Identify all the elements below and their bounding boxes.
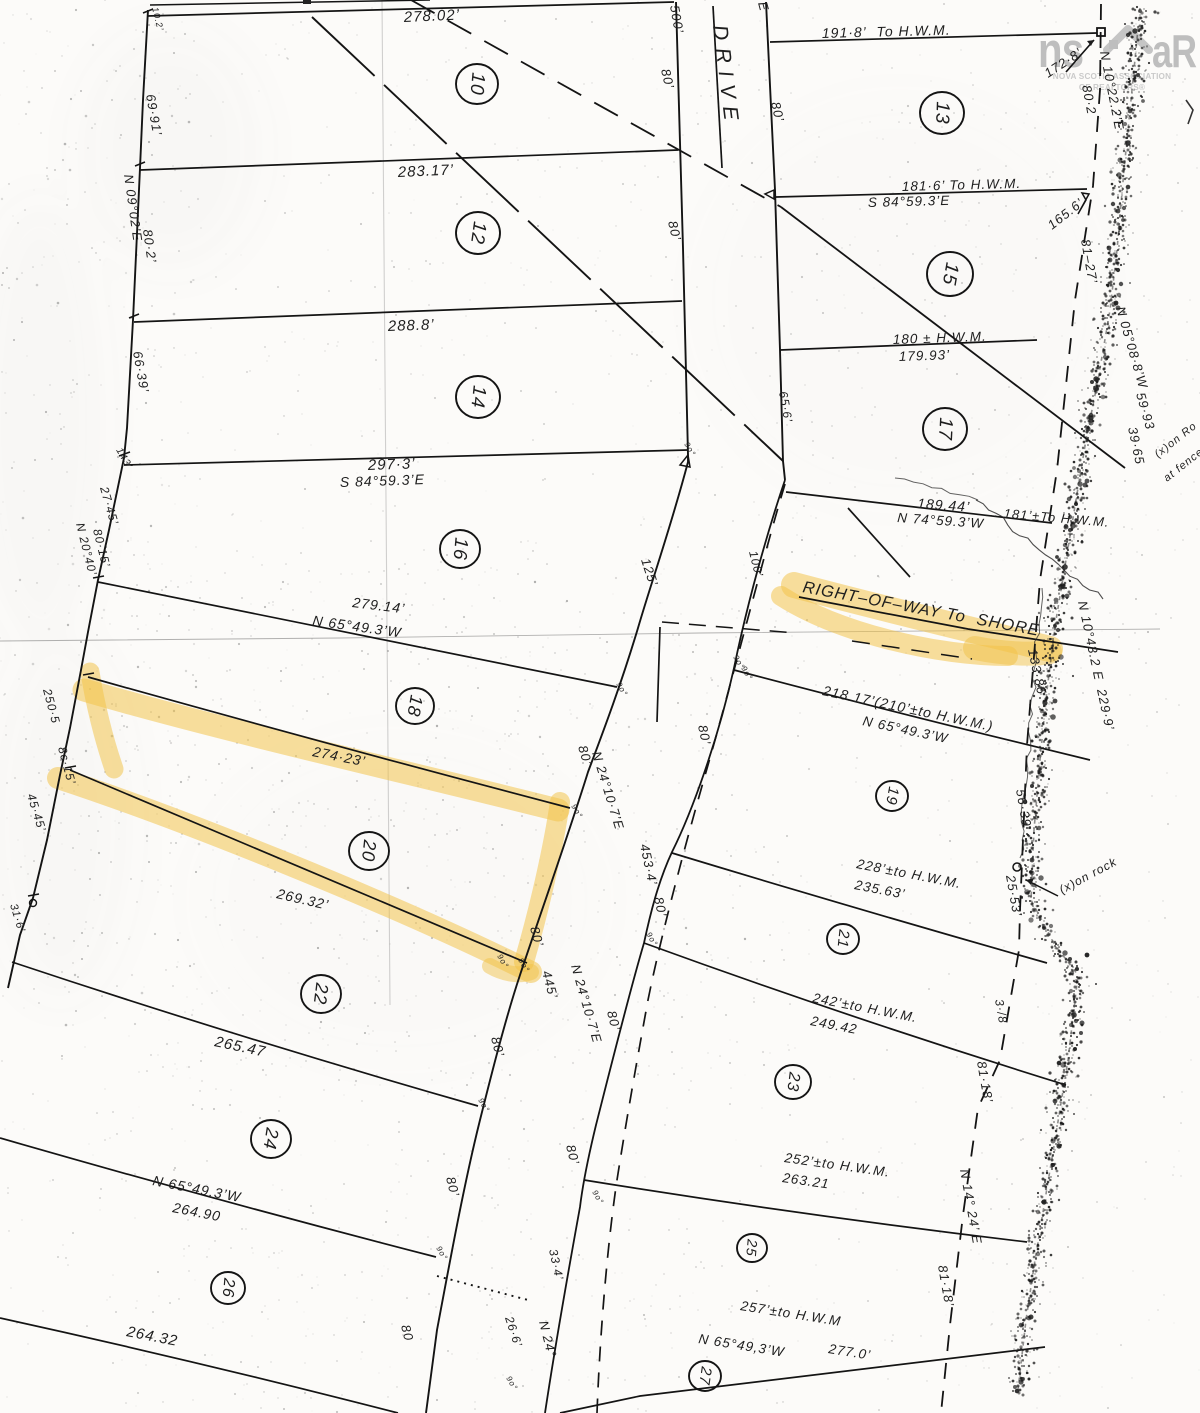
svg-text:18: 18 bbox=[403, 693, 427, 718]
svg-text:278.02’: 278.02’ bbox=[402, 7, 460, 26]
svg-text:19: 19 bbox=[882, 785, 902, 806]
svg-text:179.93’: 179.93’ bbox=[899, 347, 951, 364]
svg-text:S 84°59.3’E: S 84°59.3’E bbox=[868, 193, 951, 210]
svg-text:283.17’: 283.17’ bbox=[396, 162, 454, 181]
svg-text:S 84°59.3’E: S 84°59.3’E bbox=[340, 471, 426, 490]
svg-text:13: 13 bbox=[931, 101, 953, 125]
svg-text:20: 20 bbox=[358, 838, 380, 863]
svg-text:24: 24 bbox=[259, 1126, 282, 1152]
svg-text:288.8’: 288.8’ bbox=[387, 316, 435, 335]
svg-text:191·8’ To H.W.M.: 191·8’ To H.W.M. bbox=[822, 22, 951, 41]
svg-text:21: 21 bbox=[834, 928, 853, 949]
svg-text:12: 12 bbox=[466, 220, 490, 246]
svg-text:27: 27 bbox=[695, 1365, 715, 1387]
svg-text:26: 26 bbox=[219, 1276, 238, 1298]
svg-text:25: 25 bbox=[743, 1238, 761, 1258]
svg-text:17: 17 bbox=[934, 417, 956, 442]
svg-text:14: 14 bbox=[466, 384, 489, 409]
svg-text:15: 15 bbox=[938, 261, 963, 287]
svg-text:10: 10 bbox=[466, 72, 489, 97]
svg-text:aR: aR bbox=[1152, 26, 1196, 77]
svg-text:23: 23 bbox=[783, 1070, 802, 1093]
svg-text:16: 16 bbox=[449, 537, 472, 562]
svg-text:22: 22 bbox=[310, 981, 333, 1006]
svg-text:181·6’ To H.W.M.: 181·6’ To H.W.M. bbox=[902, 176, 1022, 194]
